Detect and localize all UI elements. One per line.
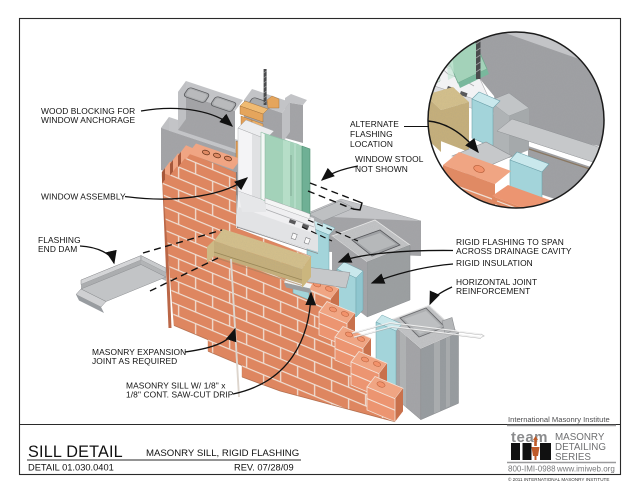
svg-text:WINDOW STOOL: WINDOW STOOL (355, 154, 424, 164)
svg-text:ACROSS DRAINAGE CAVITY: ACROSS DRAINAGE CAVITY (456, 246, 572, 256)
svg-text:800-IMI-0988: 800-IMI-0988 (508, 465, 556, 474)
svg-text:JOINT AS REQUIRED: JOINT AS REQUIRED (92, 356, 177, 366)
svg-text:LOCATION: LOCATION (350, 139, 393, 149)
svg-text:SERIES: SERIES (555, 452, 591, 463)
svg-text:www.imiweb.org: www.imiweb.org (556, 465, 615, 474)
svg-text:MASONRY SILL, RIGID FLASHING: MASONRY SILL, RIGID FLASHING (146, 448, 299, 459)
svg-text:© 2011 INTERNATIONAL MASONRY I: © 2011 INTERNATIONAL MASONRY INSTITUTE (508, 476, 609, 482)
svg-text:1/8" CONT. SAW-CUT DRIP: 1/8" CONT. SAW-CUT DRIP (126, 390, 234, 400)
svg-text:DETAIL 01.030.0401: DETAIL 01.030.0401 (28, 463, 114, 473)
svg-text:SILL DETAIL: SILL DETAIL (28, 443, 123, 461)
svg-text:WINDOW ANCHORAGE: WINDOW ANCHORAGE (41, 115, 136, 125)
svg-text:REV. 07/28/09: REV. 07/28/09 (234, 463, 294, 473)
svg-text:WINDOW ASSEMBLY: WINDOW ASSEMBLY (41, 192, 126, 202)
svg-text:International Masonry Institut: International Masonry Institute (508, 415, 610, 424)
svg-text:NOT SHOWN: NOT SHOWN (355, 164, 408, 174)
svg-text:FLASHING: FLASHING (350, 129, 393, 139)
svg-text:END DAM: END DAM (38, 244, 77, 254)
svg-text:RIGID INSULATION: RIGID INSULATION (456, 258, 533, 268)
svg-text:REINFORCEMENT: REINFORCEMENT (456, 286, 530, 296)
svg-text:ALTERNATE: ALTERNATE (350, 119, 399, 129)
